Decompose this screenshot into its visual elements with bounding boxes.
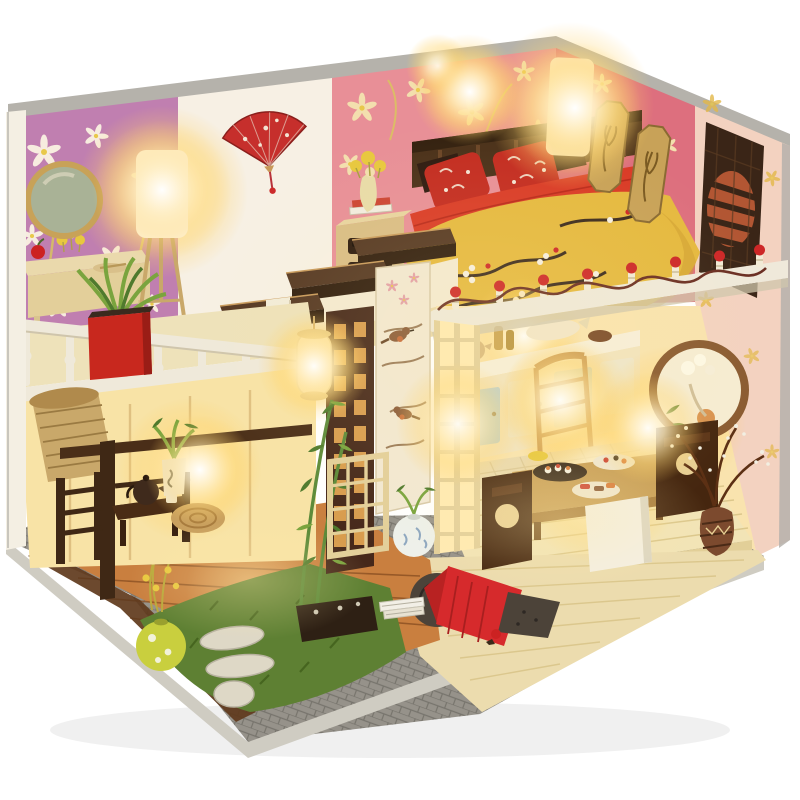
round-stone — [214, 681, 254, 707]
red-bead — [491, 629, 501, 639]
loft-round-mirror — [28, 164, 100, 236]
dollhouse-scene — [0, 0, 800, 800]
dollhouse-product-photo — [0, 0, 800, 800]
red-apple — [31, 245, 45, 259]
